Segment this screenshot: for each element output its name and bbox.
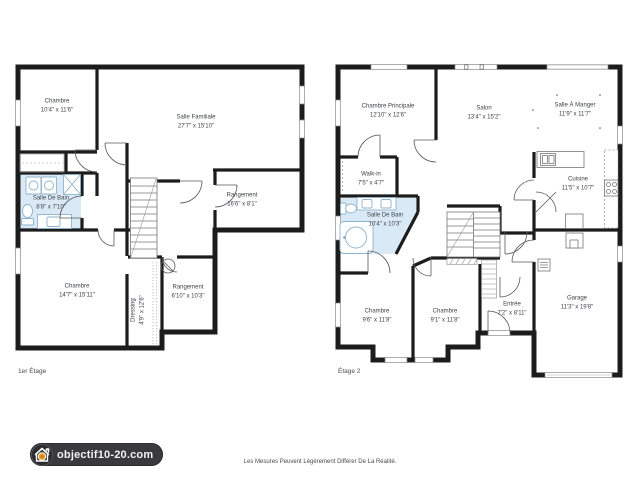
room-label-cuisine: Cuisine 11'5" x 10'7"	[562, 175, 594, 192]
room-label-salle-a-manger: Salle À Manger 11'9" x 11'7"	[554, 101, 595, 118]
floor-label-etage-2: Étage 2	[338, 368, 360, 375]
room-label-rangement-2: Rangement 6'10" x 10'3"	[172, 283, 205, 300]
room-label-salle-familiale: Salle Familiale 27'7" x 15'10"	[176, 113, 215, 130]
room-label-salon: Salon 13'4" x 15'2"	[468, 104, 501, 121]
room-label-chambre-1: Chambre 10'4" x 11'6"	[41, 97, 73, 114]
room-label-walk-in: Walk-in 7'5" x 4'7"	[358, 170, 384, 187]
room-label-rangement-1: Rangement 16'6" x 8'1"	[226, 191, 257, 208]
floor-label-1er-etage: 1er Étage	[18, 368, 46, 375]
room-label-entree: Entrée 7'2" x 8'11"	[497, 300, 526, 317]
room-label-chambre-4: Chambre 9'1" x 11'8"	[430, 307, 459, 324]
house-camera-icon	[31, 444, 53, 466]
room-label-garage: Garage 11'3" x 19'8"	[561, 294, 593, 311]
stairs2-icon	[447, 212, 500, 257]
fridge-icon	[566, 214, 584, 229]
room-label-salle-de-bain-2: Salle De Bain 10'4" x 10'3"	[367, 211, 403, 228]
room-label-chambre-2: Chambre 14'7" x 15'11"	[59, 282, 95, 299]
room-label-dressing: Dressing 4'9" x 12'6"	[129, 295, 146, 325]
objectif10-20-logo[interactable]: objectif10-20.com	[30, 443, 163, 466]
room-label-chambre-principale: Chambre Principale 12'10" x 12'6"	[362, 102, 415, 119]
disclaimer-text: Les Mesures Peuvent Légèrement Différer …	[244, 459, 397, 465]
stove-icon	[605, 180, 619, 196]
stairs-icon	[131, 178, 158, 258]
front-door	[488, 330, 510, 335]
floorplan-page: Chambre 10'4" x 11'6" Salle Familiale 27…	[0, 0, 640, 480]
logo-text: objectif10-20.com	[57, 449, 153, 461]
room-label-chambre-3: Chambre 9'6" x 11'8"	[362, 307, 391, 324]
floor-plan-drawing	[0, 0, 640, 480]
toilet-icon	[23, 205, 33, 218]
garage-fixtures	[538, 233, 583, 271]
room-label-salle-de-bain-1: Salle De Bain 8'8" x 7'10"	[33, 194, 69, 211]
